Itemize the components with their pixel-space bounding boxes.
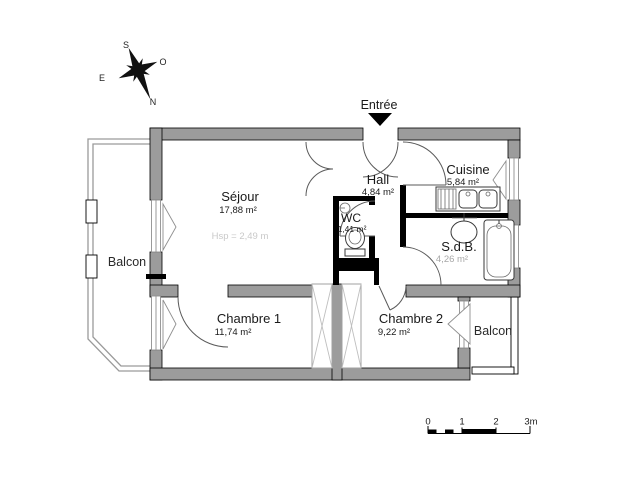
entry-label: Entrée xyxy=(361,98,398,112)
compass-star xyxy=(109,40,170,108)
wc-name: WC xyxy=(341,211,361,225)
window-chambre1-swing-icon xyxy=(163,300,176,349)
window-chambre2-swing-icon xyxy=(448,304,470,344)
sink-bowl-right xyxy=(479,190,497,208)
compass-star-main xyxy=(109,40,170,108)
wall-bottom xyxy=(150,368,470,380)
hall-area: 4,84 m² xyxy=(362,187,394,198)
wall-wc-right-lower xyxy=(369,236,375,260)
wall-radiator-mark xyxy=(146,274,166,279)
entry-arrow-icon xyxy=(368,113,392,126)
bathtub-outer xyxy=(484,220,514,280)
window-sejour-swing-icon xyxy=(163,204,176,250)
sejour-door-arc-upper xyxy=(306,142,333,169)
balcony-left-post xyxy=(86,200,97,223)
scale-label-0: 0 xyxy=(425,417,430,428)
chambre2-door-leaf xyxy=(379,286,390,310)
scale-segment xyxy=(445,430,454,434)
scale-segment-solid xyxy=(462,429,496,434)
sejour-name: Séjour xyxy=(221,189,259,204)
wc-area: 1,41 m² xyxy=(338,224,367,234)
wall-ch2-balcony-lower xyxy=(458,348,470,368)
wall-wc-bottom xyxy=(333,258,379,271)
balcony-right-railing-bottom xyxy=(472,367,514,374)
wall-divider-sdb-ch2 xyxy=(406,285,520,297)
chambre2-area: 9,22 m² xyxy=(378,327,410,338)
cuisine-area: 5,84 m² xyxy=(447,177,479,188)
kitchen-sink xyxy=(436,187,500,211)
cuisine-name: Cuisine xyxy=(446,162,489,177)
scale-segment xyxy=(428,430,437,434)
sink-bowl-left xyxy=(459,190,477,208)
balcony-right-label: Balcon xyxy=(474,324,512,338)
sejour-ceiling-note: Hsp = 2,49 m xyxy=(212,231,269,242)
wall-top-left xyxy=(150,128,363,140)
bathtub xyxy=(484,220,514,280)
toilet-tank xyxy=(345,249,365,256)
balcony-left: Balcon xyxy=(86,139,150,371)
chambre1-area: 11,74 m² xyxy=(215,327,252,338)
sdb-name: S.d.B. xyxy=(441,239,476,254)
chambre2-door-arc xyxy=(390,286,406,310)
cuisine-door-arc xyxy=(403,142,446,185)
compass-west-label: O xyxy=(159,57,166,67)
chambre2-name: Chambre 2 xyxy=(379,311,443,326)
wall-top-right xyxy=(398,128,520,140)
hall-name: Hall xyxy=(367,172,390,187)
compass-north-label: N xyxy=(150,97,157,107)
scale-bar: 0 1 2 3m xyxy=(425,417,537,434)
sdb-door-arc xyxy=(403,247,441,285)
scale-label-1: 1 xyxy=(459,417,464,428)
floor-plan: S O E N Entrée Balcon Balcon xyxy=(0,0,640,480)
sejour-door-arc-lower xyxy=(306,169,333,196)
wall-divider-sejour-ch1-left xyxy=(150,285,178,297)
chambre1-name: Chambre 1 xyxy=(217,311,281,326)
entry-marker: Entrée xyxy=(361,98,398,126)
compass-south-label: S xyxy=(123,40,129,50)
wall-ch2-balcony-upper xyxy=(458,297,470,301)
balcony-right: Balcon xyxy=(472,297,518,374)
balcony-left-label: Balcon xyxy=(108,255,146,269)
sdb-area: 4,26 m² xyxy=(436,254,468,265)
wall-divider-sejour-ch1-right xyxy=(228,285,312,297)
scale-label-2: 2 xyxy=(493,417,498,428)
scale-label-3m: 3m xyxy=(524,417,537,428)
wall-closet-center xyxy=(332,284,342,380)
balcony-left-post xyxy=(86,255,97,278)
compass-rose: S O E N xyxy=(99,40,170,108)
wall-sejour-right xyxy=(333,196,339,285)
wall-ch2-door-frame xyxy=(374,258,379,285)
sejour-area: 17,88 m² xyxy=(219,205,257,216)
wall-cuisine-sdb-divider xyxy=(403,213,508,218)
wall-left-upper xyxy=(150,128,162,200)
wall-right-upper xyxy=(508,140,520,158)
compass-east-label: E xyxy=(99,73,105,83)
